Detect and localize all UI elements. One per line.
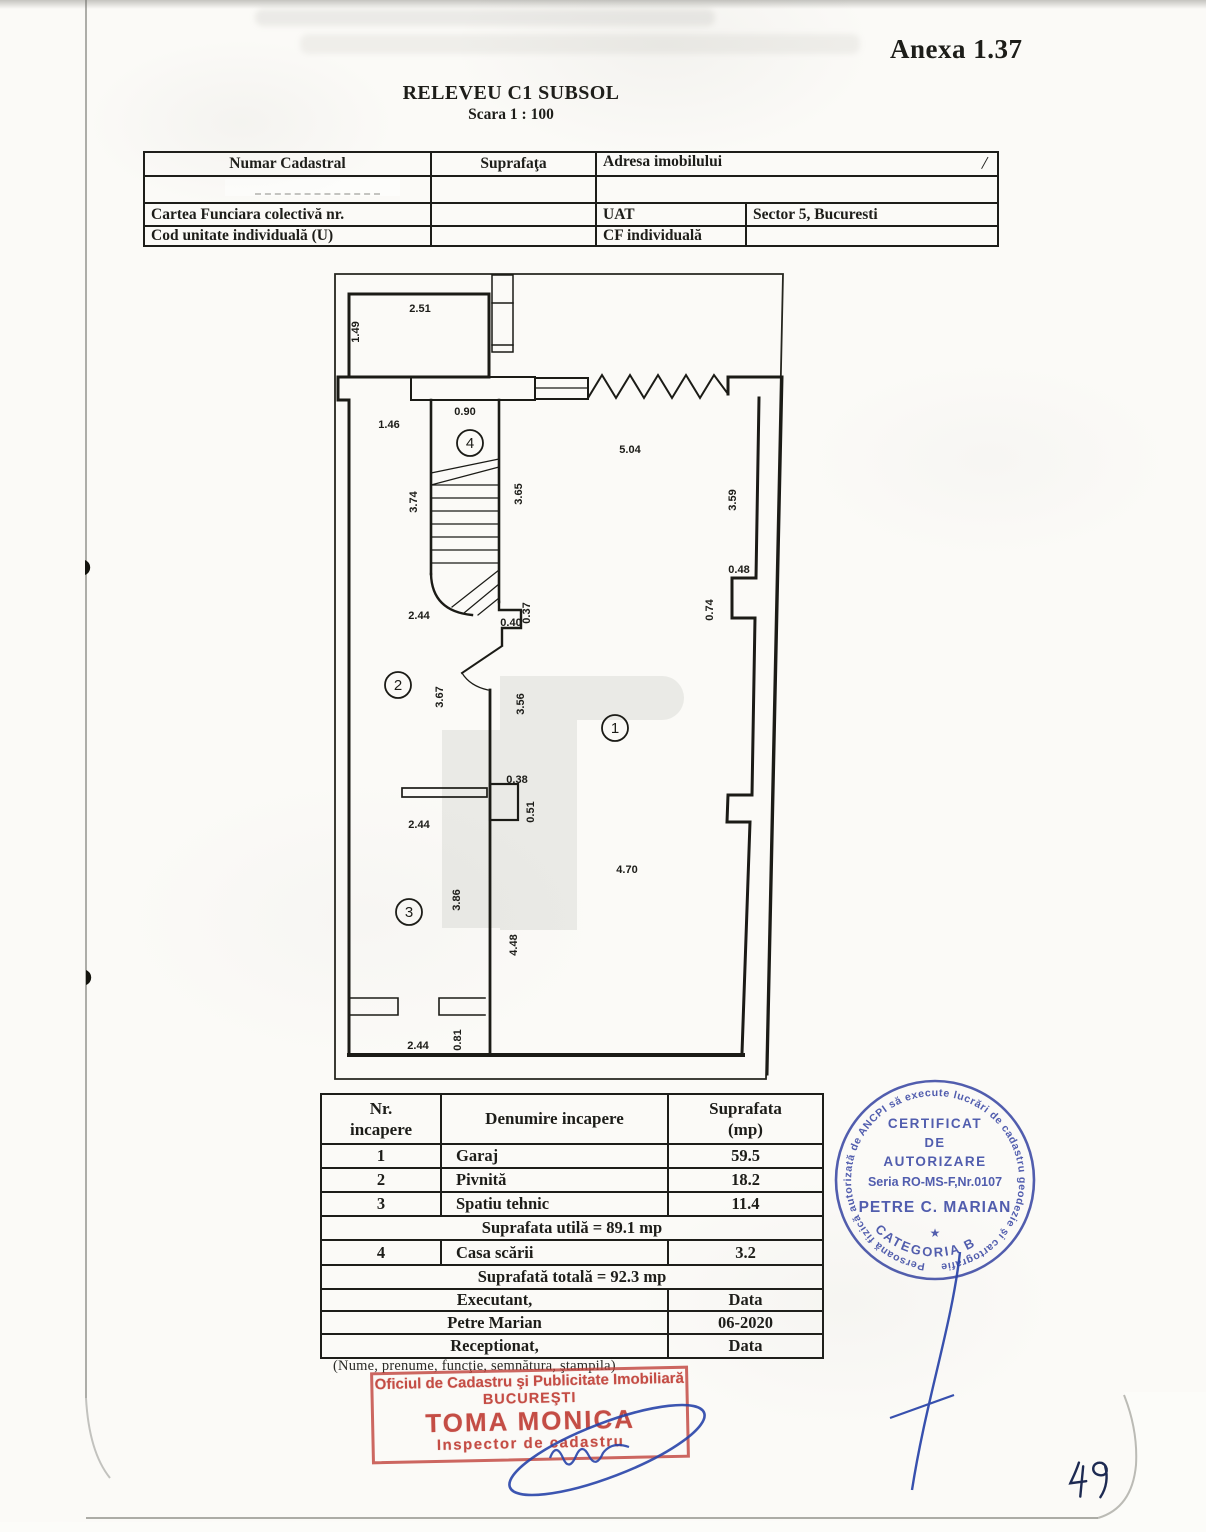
- star-icon: ★: [930, 1226, 941, 1240]
- page-number-value: 49: [1062, 1498, 1063, 1499]
- executant-label: Executant,: [321, 1289, 668, 1311]
- table-row: Executant, Data: [321, 1289, 823, 1311]
- data-label: Data: [668, 1289, 823, 1311]
- window-recess: [439, 998, 485, 1015]
- table-row: Numar Cadastral Suprafaţa Adresa imobilu…: [144, 152, 998, 176]
- certifier-signature: [890, 1252, 960, 1490]
- header-nr-line1: Nr.: [326, 1098, 436, 1119]
- receptionat-label: Receptionat,: [321, 1334, 668, 1358]
- north-wall-band: [411, 377, 535, 400]
- table-row: Suprafata utilă = 89.1 mp: [321, 1216, 823, 1240]
- scan-ghost-smudge: [255, 9, 715, 26]
- header-nr-line2: incapere: [326, 1119, 436, 1140]
- page-left-edge: [0, 0, 140, 1532]
- dim-label: 0.38: [506, 774, 527, 786]
- scale-label: Scara 1 : 100: [330, 106, 692, 124]
- dim-label: 2.44: [408, 610, 430, 622]
- floor-plan: 2.51 1.49 0.90 1.46 5.04 3.74 3.65 3.59 …: [332, 272, 788, 1086]
- dim-label: 4.70: [616, 864, 637, 876]
- dim-label: 2.44: [408, 819, 430, 831]
- dim-label: 5.04: [619, 444, 641, 456]
- room-area: 11.4: [668, 1192, 823, 1216]
- table-row: 1 Garaj 59.5: [321, 1144, 823, 1168]
- room-name: Pivnită: [441, 1168, 668, 1192]
- stamp-series: Seria RO-MS-F,Nr.0107: [868, 1175, 1002, 1189]
- stair-curve: [431, 574, 472, 615]
- header-nr-incapere: Nr. incapere: [321, 1094, 441, 1144]
- cf-individuala-value: [746, 226, 998, 246]
- scan-top-shadow: [0, 0, 1206, 9]
- dim-label: 0.74: [704, 598, 716, 620]
- room-nr: 3: [321, 1192, 441, 1216]
- dim-label: 0.37: [521, 602, 533, 623]
- dim-label: 3.65: [513, 483, 525, 504]
- empty-cell: [431, 203, 596, 226]
- room-nr: 4: [321, 1240, 441, 1265]
- dim-label: 0.90: [454, 406, 475, 418]
- dim-label: 2.44: [407, 1040, 429, 1052]
- door-swing-arc: [462, 673, 488, 690]
- scan-watermark: [442, 676, 684, 930]
- dim-label: 3.59: [727, 489, 739, 510]
- dim-label: 0.51: [525, 801, 537, 822]
- header-suprafata-mp: Suprafata (mp): [668, 1094, 823, 1144]
- data-label: Data: [668, 1334, 823, 1358]
- room-name: Spatiu tehnic: [441, 1192, 668, 1216]
- room-name: Casa scării: [441, 1240, 668, 1265]
- dim-label: 4.48: [508, 934, 520, 955]
- inspector-signature: [480, 1378, 740, 1528]
- cf-individuala-label: CF individuală: [596, 226, 746, 246]
- table-row: Cartea Funciara colectivă nr. UAT Sector…: [144, 203, 998, 226]
- table-row: Receptionat, Data: [321, 1334, 823, 1358]
- header-adresa-label: Adresa imobilului: [603, 153, 722, 170]
- stamp-line1: CERTIFICAT: [888, 1116, 982, 1131]
- cartea-funciara-label: Cartea Funciara colectivă nr.: [144, 203, 431, 226]
- header-area-line1: Suprafata: [673, 1098, 818, 1119]
- table-header-row: Nr. incapere Denumire incapere Suprafata…: [321, 1094, 823, 1144]
- dim-label: 3.86: [451, 889, 463, 910]
- dim-label: 0.48: [728, 564, 749, 576]
- cod-unitate-label: Cod unitate individuală (U): [144, 226, 431, 246]
- document-page: Anexa 1.37 RELEVEU C1 SUBSOL Scara 1 : 1…: [0, 0, 1206, 1532]
- header-suprafata: Suprafaţa: [431, 152, 596, 176]
- header-numar-cadastral: Numar Cadastral: [144, 152, 431, 176]
- left-outer-wall: [338, 377, 349, 1055]
- punch-hole: [85, 560, 90, 575]
- scan-ghost-smudge: [300, 34, 860, 54]
- table-row: 4 Casa scării 3.2: [321, 1240, 823, 1265]
- dim-label: 0.40: [500, 617, 521, 629]
- total-area-row: Suprafată totală = 92.3 mp: [321, 1265, 823, 1289]
- room-number: 3: [405, 904, 413, 921]
- annex-label: Anexa 1.37: [890, 34, 1023, 65]
- right-outer-wall: [767, 377, 782, 1074]
- header-adresa: Adresa imobilului /: [596, 152, 998, 176]
- table-row: 3 Spatiu tehnic 11.4: [321, 1192, 823, 1216]
- stamp-line2: DE: [924, 1135, 945, 1150]
- dim-label: 1.49: [350, 321, 362, 342]
- door-leaf: [462, 646, 502, 673]
- round-certification-stamp: Persoană fizică autorizată de ANCPI să e…: [820, 1065, 1070, 1525]
- dim-label: 0.81: [452, 1029, 464, 1050]
- executant-name: Petre Marian: [321, 1311, 668, 1334]
- header-area-line2: (mp): [673, 1119, 818, 1140]
- page-title: RELEVEU C1 SUBSOL: [330, 82, 692, 105]
- room-number: 4: [466, 435, 474, 452]
- room-name: Garaj: [441, 1144, 668, 1168]
- stair-treads: [431, 459, 499, 615]
- table-row: Suprafată totală = 92.3 mp: [321, 1265, 823, 1289]
- empty-cell: [431, 226, 596, 246]
- dim-label: 1.46: [378, 419, 399, 431]
- window-recess: [351, 998, 398, 1015]
- stamp-line3: AUTORIZARE: [883, 1154, 986, 1169]
- room-number: 2: [394, 677, 402, 694]
- dim-label: 3.56: [515, 693, 527, 714]
- room-number: 1: [611, 720, 619, 737]
- zigzag-opening: [588, 375, 728, 398]
- uat-label: UAT: [596, 203, 746, 226]
- room-nr: 1: [321, 1144, 441, 1168]
- table-row: Petre Marian 06-2020: [321, 1311, 823, 1334]
- uat-value: Sector 5, Bucuresti: [746, 203, 998, 226]
- room-area: 59.5: [668, 1144, 823, 1168]
- useful-area-row: Suprafata utilă = 89.1 mp: [321, 1216, 823, 1240]
- title-block: RELEVEU C1 SUBSOL Scara 1 : 100: [330, 82, 692, 124]
- empty-cell: [596, 176, 998, 203]
- entry-step: [492, 275, 513, 352]
- empty-cell: [431, 176, 596, 203]
- dim-label: 3.74: [408, 490, 420, 512]
- rooms-table: Nr. incapere Denumire incapere Suprafata…: [320, 1093, 824, 1359]
- handwritten-page-number: [1058, 1448, 1138, 1512]
- header-denumire: Denumire incapere: [441, 1094, 668, 1144]
- dim-label: 2.51: [409, 303, 430, 315]
- table-row: Cod unitate individuală (U) CF individua…: [144, 226, 998, 246]
- stamp-person-name: PETRE C. MARIAN: [859, 1199, 1012, 1216]
- punch-hole: [86, 970, 91, 985]
- dim-label: 3.67: [434, 686, 446, 707]
- room-nr: 2: [321, 1168, 441, 1192]
- handwritten-slash: /: [980, 153, 989, 176]
- date-value: 06-2020: [668, 1311, 823, 1334]
- cadastral-table: Numar Cadastral Suprafaţa Adresa imobilu…: [143, 151, 999, 247]
- whiteout-dashes: [255, 193, 380, 195]
- table-row: 2 Pivnită 18.2: [321, 1168, 823, 1192]
- room-area: 3.2: [668, 1240, 823, 1265]
- room-area: 18.2: [668, 1168, 823, 1192]
